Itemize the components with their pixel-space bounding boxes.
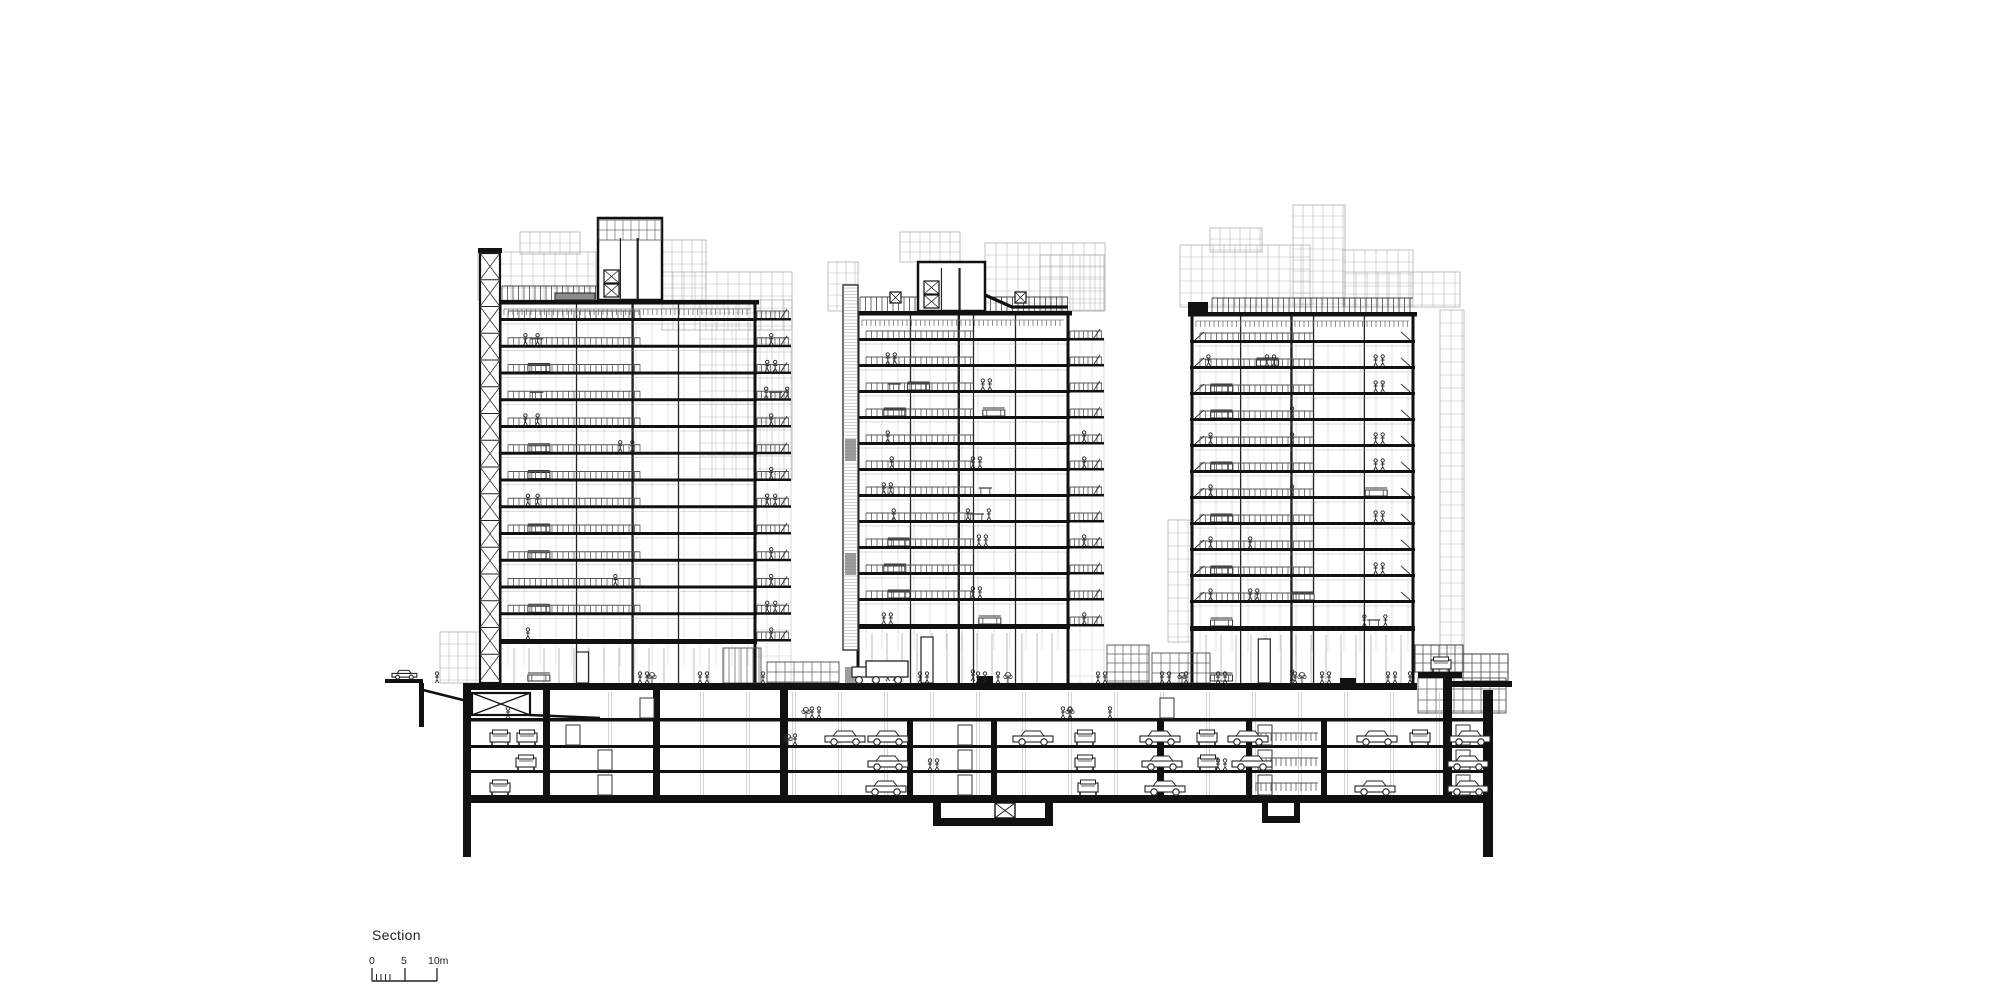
person-icon xyxy=(996,672,1000,683)
floor-contents xyxy=(613,574,773,585)
person-icon xyxy=(1381,563,1385,574)
podium-street-level xyxy=(385,645,1512,727)
table-icon xyxy=(1367,620,1380,626)
person-icon xyxy=(1408,672,1412,683)
person-icon xyxy=(698,672,702,683)
plant-icon xyxy=(1066,707,1074,718)
curtain-wall-grid xyxy=(440,632,482,683)
railing xyxy=(1200,437,1314,444)
person-icon xyxy=(638,672,642,683)
drawing-content xyxy=(385,205,1512,857)
person-icon xyxy=(1381,355,1385,366)
car-front-icon xyxy=(517,730,537,745)
car-icon xyxy=(825,731,865,745)
person-icon xyxy=(536,414,540,425)
railing xyxy=(508,338,640,345)
section-drawing-canvas: Section 0 5 10m xyxy=(0,0,2000,1000)
floor-contents xyxy=(888,379,992,390)
floor-contents xyxy=(888,587,982,598)
person-icon xyxy=(981,379,985,390)
person-icon xyxy=(1255,589,1259,600)
floor-contents xyxy=(882,613,1086,624)
person-icon xyxy=(1209,589,1213,600)
person-icon xyxy=(1383,615,1387,626)
car-icon xyxy=(868,756,908,770)
person-icon xyxy=(435,672,439,683)
sofa-icon xyxy=(528,673,550,681)
floor-contents xyxy=(1209,537,1253,548)
person-icon xyxy=(645,672,649,683)
car-front-icon xyxy=(1431,657,1451,672)
railing xyxy=(508,579,640,586)
floor-contents xyxy=(1211,615,1388,626)
person-icon xyxy=(1320,672,1324,683)
person-icon xyxy=(1082,535,1086,546)
railing xyxy=(866,357,974,364)
curtain-wall-grid xyxy=(1463,654,1508,681)
person-icon xyxy=(987,509,991,520)
person-icon xyxy=(1374,563,1378,574)
person-icon xyxy=(1103,672,1107,683)
truck-icon xyxy=(852,661,908,683)
ground-floor-storefront xyxy=(1206,635,1401,683)
person-icon xyxy=(526,628,530,639)
floor-contents xyxy=(1211,511,1385,522)
caption: Section 0 5 10m xyxy=(369,927,449,981)
floor-contents xyxy=(882,483,992,494)
person-icon xyxy=(1061,707,1065,718)
person-icon xyxy=(1374,381,1378,392)
railing xyxy=(508,391,640,398)
person-icon xyxy=(1293,672,1297,683)
railing xyxy=(1196,321,1409,327)
person-icon xyxy=(1381,511,1385,522)
person-icon xyxy=(769,574,773,585)
railing xyxy=(1070,383,1102,390)
person-icon xyxy=(1167,672,1171,683)
curtain-wall-grid xyxy=(1168,520,1192,642)
railing xyxy=(757,365,789,372)
railing xyxy=(757,605,789,612)
floor-contents xyxy=(528,601,777,612)
floor-contents xyxy=(1211,670,1295,681)
floor-contents xyxy=(526,494,777,505)
sofa-icon xyxy=(979,616,1001,624)
person-icon xyxy=(1248,589,1252,600)
person-icon xyxy=(1082,457,1086,468)
table-icon xyxy=(971,514,984,520)
person-icon xyxy=(1327,672,1331,683)
railing xyxy=(1070,565,1102,572)
floor-contents xyxy=(528,673,550,681)
person-icon xyxy=(1096,672,1100,683)
scale-label-10m: 10m xyxy=(428,955,449,967)
person-icon xyxy=(988,379,992,390)
railing xyxy=(1070,487,1102,494)
railing xyxy=(1200,333,1314,340)
curtain-wall-grid xyxy=(1040,255,1104,311)
person-icon xyxy=(1209,433,1213,444)
elevator-shaft-x-braced xyxy=(478,248,502,683)
sofa-icon xyxy=(1211,618,1233,626)
curtain-wall-grid xyxy=(520,232,580,254)
person-icon xyxy=(1374,511,1378,522)
railing xyxy=(508,418,640,425)
railing xyxy=(866,591,974,598)
person-icon xyxy=(977,535,981,546)
floor-contents xyxy=(1209,485,1388,496)
railing xyxy=(866,565,974,572)
floor-contents xyxy=(1211,563,1385,574)
floor-contents xyxy=(528,548,773,559)
person-icon xyxy=(1374,459,1378,470)
car-front-icon xyxy=(1410,730,1430,745)
railing xyxy=(1200,489,1314,496)
scale-label-5: 5 xyxy=(401,955,407,967)
car-front-icon xyxy=(490,730,510,745)
floor-contents xyxy=(530,387,789,398)
railing xyxy=(866,539,974,546)
person-icon xyxy=(536,494,540,505)
railing xyxy=(862,320,1064,326)
person-icon xyxy=(1386,672,1390,683)
x-braced-box xyxy=(604,284,619,297)
floor-contents xyxy=(886,353,897,364)
floor-contents xyxy=(888,535,1086,546)
person-icon xyxy=(978,457,982,468)
building-left-tower xyxy=(440,218,792,683)
car-icon xyxy=(866,781,906,795)
person-icon xyxy=(1374,355,1378,366)
rooftop-penthouse xyxy=(918,262,985,311)
curtain-wall-grid xyxy=(767,662,839,683)
person-icon xyxy=(1248,537,1252,548)
x-braced-box xyxy=(604,270,619,283)
person-icon xyxy=(889,613,893,624)
curtain-wall-grid xyxy=(1440,310,1464,672)
person-icon xyxy=(810,707,814,718)
plant-icon xyxy=(1004,672,1012,683)
building-right-tower xyxy=(1168,205,1464,683)
person-icon xyxy=(978,587,982,598)
drawing-title: Section xyxy=(372,927,421,943)
person-icon xyxy=(1374,433,1378,444)
floor-contents xyxy=(1211,381,1385,392)
floor-contents xyxy=(1209,589,1315,600)
x-braced-box xyxy=(1015,292,1026,303)
railing xyxy=(1070,513,1102,520)
glazed-shaft xyxy=(843,285,858,689)
basement-parking xyxy=(463,678,1493,857)
railing xyxy=(866,409,974,416)
person-icon xyxy=(1381,381,1385,392)
person-icon xyxy=(935,759,939,770)
rooftop-penthouse xyxy=(598,218,662,300)
person-icon xyxy=(761,672,765,683)
floor-contents xyxy=(890,457,1086,468)
sofa-icon xyxy=(1211,673,1233,681)
railing xyxy=(860,297,918,311)
person-icon xyxy=(769,334,773,345)
x-braced-box xyxy=(995,803,1015,818)
railing xyxy=(866,331,974,338)
scale-label-0: 0 xyxy=(369,955,375,967)
floor-contents xyxy=(1209,433,1385,444)
person-icon xyxy=(966,509,970,520)
car-front-icon xyxy=(490,780,510,795)
railing xyxy=(866,435,974,442)
person-icon xyxy=(613,574,617,585)
curtain-wall-grid xyxy=(1152,653,1210,683)
x-braced-box xyxy=(890,292,901,303)
railing xyxy=(757,311,789,318)
floor-contents xyxy=(528,360,777,371)
car-icon xyxy=(1145,781,1185,795)
curtain-wall-grid xyxy=(1210,228,1262,252)
curtain-wall-grid xyxy=(900,232,960,262)
floor-contents xyxy=(1211,459,1385,470)
person-icon xyxy=(1209,537,1213,548)
building-middle-tower xyxy=(828,232,1105,689)
floor-contents xyxy=(892,509,991,520)
person-icon xyxy=(793,734,797,745)
railing xyxy=(1070,331,1102,338)
person-icon xyxy=(928,759,932,770)
person-icon xyxy=(1160,672,1164,683)
person-icon xyxy=(882,613,886,624)
railing xyxy=(866,461,974,468)
car-icon xyxy=(1357,731,1397,745)
person-icon xyxy=(1206,355,1210,366)
person-icon xyxy=(1108,707,1112,718)
person-icon xyxy=(1209,485,1213,496)
curtain-wall-grid xyxy=(1107,645,1149,683)
floor-contents xyxy=(526,628,773,639)
person-icon xyxy=(1381,433,1385,444)
railing xyxy=(1200,541,1314,548)
car-icon xyxy=(868,731,908,745)
person-icon xyxy=(705,672,709,683)
car-front-icon xyxy=(1075,730,1095,745)
person-icon xyxy=(526,494,530,505)
railing xyxy=(866,513,974,520)
curtain-wall-grid xyxy=(1345,272,1460,307)
person-icon xyxy=(1393,672,1397,683)
person-icon xyxy=(984,535,988,546)
car-icon xyxy=(392,670,417,679)
curtain-wall-grid xyxy=(1068,338,1104,683)
person-icon xyxy=(769,628,773,639)
person-icon xyxy=(817,707,821,718)
car-icon xyxy=(1355,781,1395,795)
person-icon xyxy=(769,548,773,559)
railing xyxy=(1070,409,1102,416)
person-icon xyxy=(1082,431,1086,442)
railing xyxy=(757,498,789,505)
railing xyxy=(1070,357,1102,364)
person-icon xyxy=(1082,613,1086,624)
table-icon xyxy=(769,392,782,398)
scale-bar xyxy=(372,968,437,981)
railing xyxy=(866,487,974,494)
railing xyxy=(1070,591,1102,598)
plant-icon xyxy=(1298,672,1306,683)
x-braced-box xyxy=(472,693,530,715)
plant-icon xyxy=(802,707,810,718)
x-braced-box xyxy=(924,281,939,294)
car-front-icon xyxy=(1198,755,1218,770)
railing xyxy=(508,311,640,318)
car-icon xyxy=(1013,731,1053,745)
table-icon xyxy=(979,488,992,494)
car-front-icon xyxy=(1078,780,1098,795)
floor-contents xyxy=(1211,407,1295,418)
car-front-icon xyxy=(1197,730,1217,745)
x-braced-box xyxy=(924,295,939,308)
car-front-icon xyxy=(1075,755,1095,770)
person-icon xyxy=(769,414,773,425)
person-icon xyxy=(1381,459,1385,470)
car-front-icon xyxy=(516,755,536,770)
person-icon xyxy=(1223,759,1227,770)
person-icon xyxy=(889,483,893,494)
building-section-drawing: Section 0 5 10m xyxy=(0,0,2000,1000)
